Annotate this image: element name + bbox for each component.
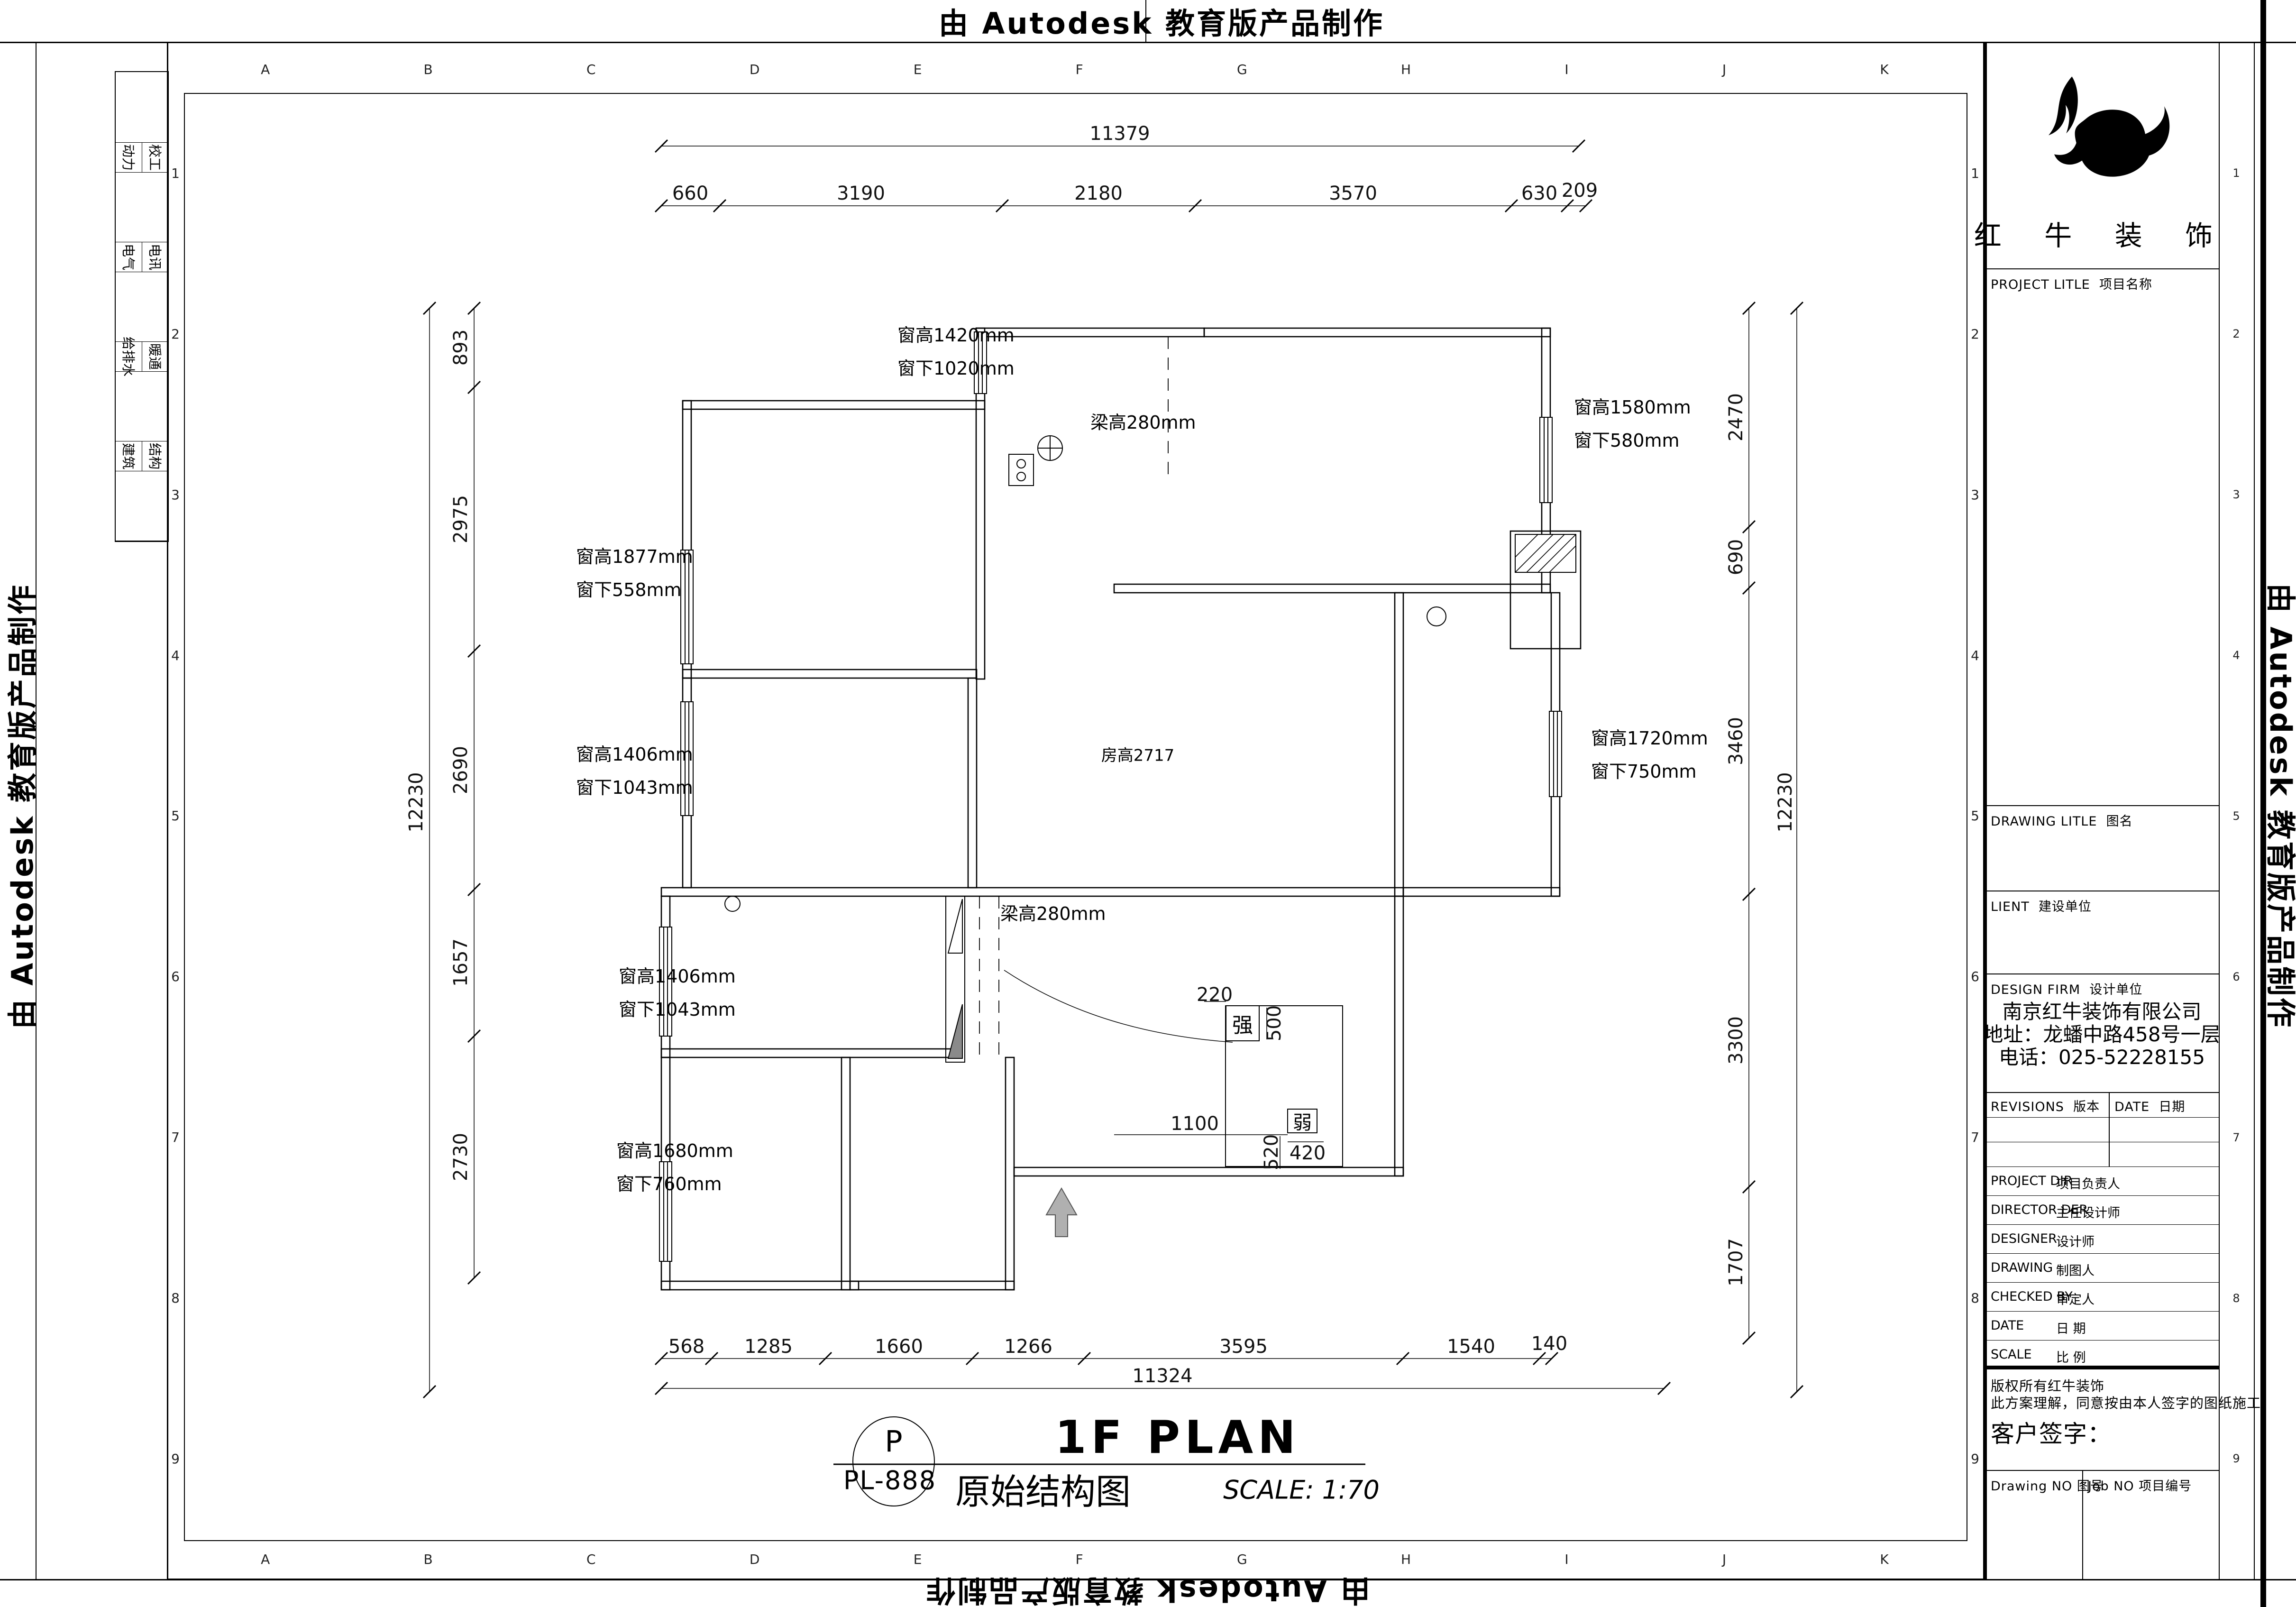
staff-rows: PROJECT DIR项目负责人 DIRECTOR DER主任设计师 DESIG…	[1985, 1166, 2219, 1369]
beam-dashed-lines	[979, 337, 1168, 1057]
staff-row: DIRECTOR DER主任设计师	[1985, 1195, 2219, 1224]
signature-label: 结构	[146, 443, 165, 469]
window-label: 窗高1877mm	[576, 548, 693, 566]
window-label: 窗高1580mm	[1574, 398, 1691, 416]
entry-arrow	[1046, 1188, 1077, 1237]
grid-number: 9	[2232, 1452, 2240, 1465]
field-revisions: REVISIONS 版本	[1991, 1096, 2100, 1115]
dim-right-overall: 12230	[1775, 772, 1796, 832]
right-edge-thick	[2260, 0, 2266, 1607]
client-sign-label: 客户签字：	[1991, 1415, 2112, 1449]
staff-row: DESIGNER设计师	[1985, 1224, 2219, 1253]
window-label: 窗下580mm	[1574, 432, 1680, 450]
grid-number: 6	[2232, 970, 2240, 983]
signature-label: 校工	[146, 144, 165, 171]
window-label: 窗高1720mm	[1591, 729, 1708, 747]
dim: 568	[668, 1336, 704, 1358]
field-date-col: DATE 日期	[2114, 1096, 2185, 1115]
field-project-title: PROJECT LITLE 项目名称	[1991, 274, 2152, 293]
walls	[661, 328, 1581, 1290]
dim: 2180	[1074, 183, 1123, 204]
grid-number: 5	[2232, 809, 2240, 823]
field-job-no: Job NO 项目编号	[2088, 1476, 2192, 1494]
window-label: 窗下1020mm	[897, 359, 1015, 377]
leader-line	[1004, 970, 1233, 1042]
dim: 1707	[1725, 1238, 1747, 1286]
dim: 1266	[1004, 1336, 1052, 1358]
copyright-line2: 此方案理解，同意按由本人签字的图纸施工；	[1991, 1392, 2275, 1412]
signature-label: 电气	[119, 244, 138, 270]
signature-label: 建筑	[119, 443, 138, 469]
room-height-label: 房高2717	[1101, 743, 1175, 766]
right-strip-rule	[2254, 42, 2255, 1580]
brand-name: 红 牛 装 饰	[1974, 213, 2230, 253]
staff-row: CHECKED BY审定人	[1985, 1282, 2219, 1311]
dim: 3190	[837, 183, 885, 204]
dim: 1540	[1447, 1336, 1495, 1358]
signature-unit: 建筑 结构	[116, 441, 168, 541]
redbull-logo-icon	[2028, 65, 2179, 208]
signature-label: 暖通	[146, 343, 165, 370]
grid-number: 8	[2232, 1292, 2240, 1305]
signature-label: 电讯	[146, 244, 165, 270]
window-label: 窗下1043mm	[619, 1001, 736, 1019]
staff-row: DATE日 期	[1985, 1311, 2219, 1340]
dim: 1285	[744, 1336, 793, 1358]
windows	[659, 332, 1562, 1261]
plot-stamp-left: 由 Autodesk 教育版产品制作	[0, 583, 41, 1029]
strong-current-box-label: 强	[1232, 1008, 1253, 1038]
signature-rows: 动力 校工 电气 电讯 给排水 暖通 建筑 结构	[116, 143, 168, 541]
signature-unit: 电气 电讯	[116, 242, 168, 342]
cad-sheet: 由 Autodesk 教育版产品制作 由 Autodesk 教育版产品制作 由 …	[0, 0, 2296, 1607]
dim: 660	[672, 183, 708, 204]
dim: 420	[1290, 1142, 1326, 1164]
field-drawing-title: DRAWING LITLE 图名	[1991, 811, 2133, 829]
signature-gap	[116, 72, 168, 143]
dim-left-overall: 12230	[405, 772, 427, 832]
dim: 1100	[1171, 1113, 1219, 1135]
grid-number: 4	[2232, 649, 2240, 662]
dim-bottom-overall: 11324	[1132, 1365, 1192, 1387]
window-label: 窗下760mm	[616, 1175, 722, 1193]
signature-unit: 给排水 暖通	[116, 342, 168, 441]
dim: 209	[1562, 180, 1598, 202]
revisions-divider	[2109, 1092, 2110, 1166]
grid-number: 3	[2232, 488, 2240, 501]
grid-number: 7	[2232, 1131, 2240, 1144]
dim: 1660	[875, 1336, 923, 1358]
dim: 220	[1197, 984, 1233, 1006]
dim: 3595	[1219, 1336, 1268, 1358]
staff-row: PROJECT DIR项目负责人	[1985, 1166, 2219, 1195]
dim: 690	[1725, 539, 1747, 575]
window-label: 窗高1680mm	[616, 1142, 733, 1160]
drawing-code: PL-888	[843, 1466, 936, 1496]
plan-scale: SCALE: 1:70	[1223, 1475, 1380, 1505]
weak-current-box-label: 弱	[1293, 1107, 1312, 1135]
title-block: 红 牛 装 饰 PROJECT LITLE 项目名称 DRAWING LITLE…	[1985, 42, 2220, 1580]
top-plot-mark	[1145, 0, 1146, 42]
field-design-firm: DESIGN FIRM 设计单位	[1991, 979, 2142, 998]
signature-unit: 动力 校工	[116, 143, 168, 242]
dim: 2470	[1725, 393, 1747, 441]
field-client: LIENT 建设单位	[1991, 896, 2092, 915]
grid-number: 2	[2232, 327, 2240, 340]
grid-numbers-strip: 123456789	[2219, 93, 2254, 1539]
window-label: 窗下750mm	[1591, 762, 1697, 781]
dim: 2730	[450, 1133, 472, 1181]
hatched-window	[1515, 534, 1576, 572]
beam-label: 梁高280mm	[1000, 905, 1106, 923]
dim: 3300	[1725, 1016, 1747, 1065]
dim: 520	[1261, 1134, 1282, 1170]
dim: 2975	[450, 495, 472, 543]
floor-plan	[167, 42, 1982, 1577]
signature-table: 动力 校工 电气 电讯 给排水 暖通 建筑 结构	[115, 71, 169, 542]
window-label: 窗高1406mm	[576, 745, 693, 763]
vent-shaft	[946, 896, 965, 1062]
dim: 893	[450, 330, 472, 366]
dim-top-overall: 11379	[1089, 123, 1150, 145]
staff-row: SCALE比 例	[1985, 1340, 2219, 1369]
plot-stamp-right: 由 Autodesk 教育版产品制作	[2262, 583, 2296, 1029]
grid-number: 1	[2232, 166, 2240, 180]
title-symbol-letter: P	[885, 1424, 902, 1459]
company-phone: 电话：025-52228155	[1999, 1041, 2205, 1070]
plot-stamp-top: 由 Autodesk 教育版产品制作	[939, 0, 1384, 42]
window-label: 窗下558mm	[576, 581, 682, 599]
dim: 1657	[450, 938, 472, 987]
fixtures	[725, 436, 1446, 911]
dim: 2690	[450, 746, 472, 794]
dim: 3460	[1725, 717, 1747, 765]
dim: 500	[1263, 1005, 1285, 1041]
signature-label: 给排水	[119, 337, 138, 376]
dim: 630	[1521, 183, 1557, 204]
dim: 140	[1531, 1333, 1567, 1355]
staff-row: DRAWING制图人	[1985, 1253, 2219, 1282]
plan-title-cn: 原始结构图	[955, 1464, 1131, 1515]
plan-title-en: 1F PLAN	[1055, 1412, 1300, 1464]
left-margin-rule	[36, 42, 37, 1580]
window-label: 窗下1043mm	[576, 779, 693, 797]
window-label: 窗高1406mm	[619, 967, 736, 985]
dim: 3570	[1329, 183, 1377, 204]
window-label: 窗高1420mm	[897, 326, 1015, 344]
beam-label: 梁高280mm	[1090, 413, 1196, 432]
signature-label: 动力	[119, 144, 138, 171]
field-drawing-no: Drawing NO 图号	[1991, 1476, 2104, 1494]
